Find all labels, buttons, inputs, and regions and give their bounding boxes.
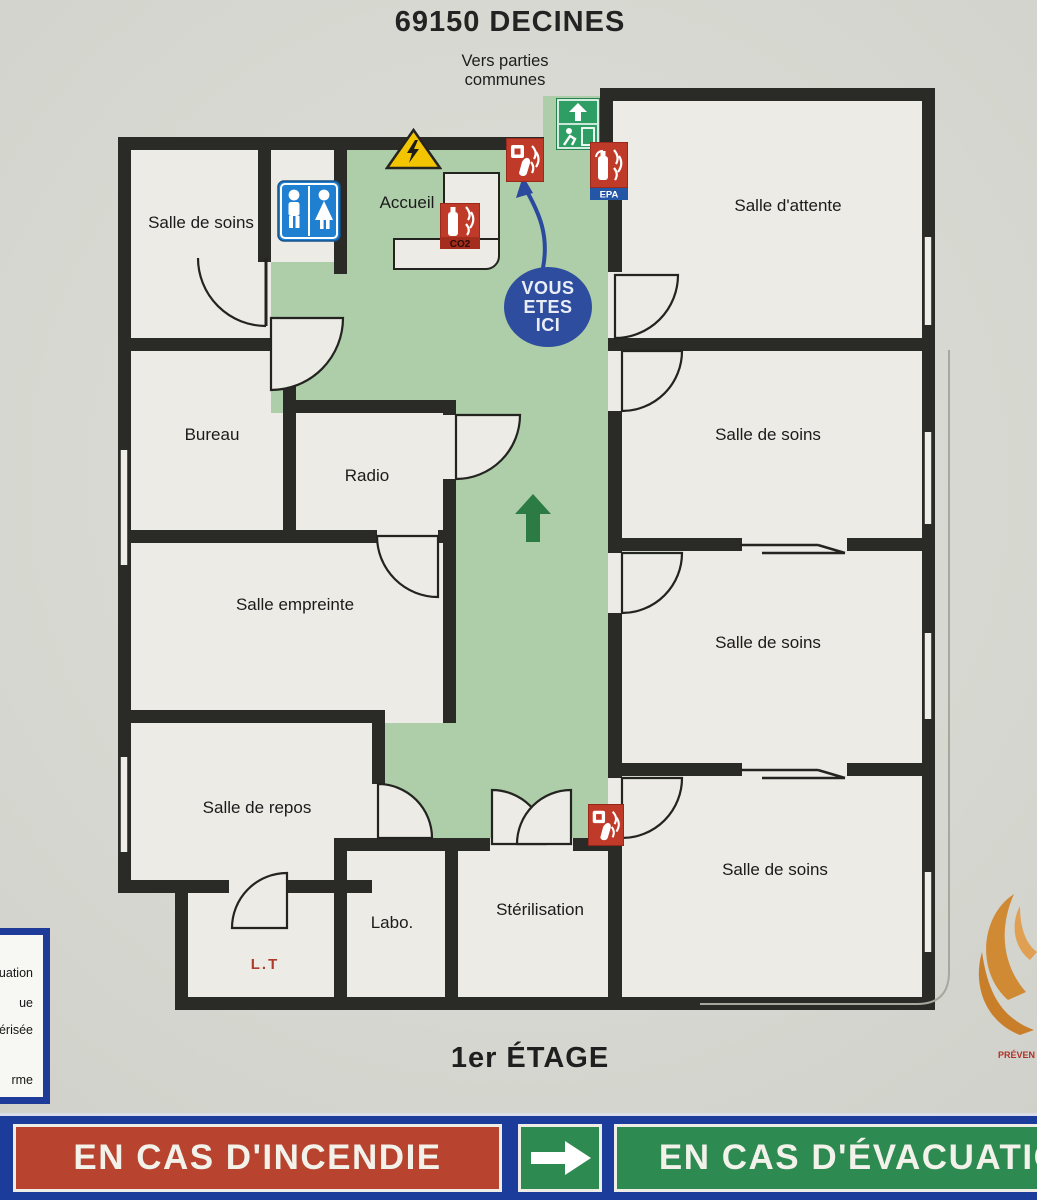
you-are-here-arrow <box>525 188 545 268</box>
legend-fragment: u pulvérisée <box>0 1023 33 1037</box>
evacuation-plan-photo: { "header": { "postcode_title": "69150 D… <box>0 0 1037 1200</box>
room-label-soins-right-1: Salle de soins <box>713 425 823 446</box>
legend-fragment: rme <box>11 1073 33 1087</box>
room-label-accueil: Accueil <box>366 193 448 214</box>
evacuation-banner: EN CAS D'ÉVACUATION <box>614 1124 1037 1192</box>
room-label-radio: Radio <box>307 466 427 487</box>
room-label-empreinte: Salle empreinte <box>225 595 365 616</box>
room-label-soins-bottom-right: Salle de soins <box>720 860 830 881</box>
room-label-attente: Salle d'attente <box>733 196 843 217</box>
evac-arrow-panel <box>518 1124 602 1192</box>
room-label-sterilisation: Stérilisation <box>465 900 615 921</box>
extinguisher-epa-icon: EPA <box>590 142 628 200</box>
door-arc-double-right <box>517 790 571 844</box>
legend-fragment: ue <box>19 996 33 1010</box>
corridor-direction-arrow-icon <box>513 494 553 544</box>
co2-label: CO2 <box>450 239 471 249</box>
legend-box: 'évacuation ue u pulvérisée rme <box>0 928 50 1104</box>
room-label-labo: Labo. <box>342 913 442 934</box>
brand-logo <box>979 894 1037 1035</box>
electrical-hazard-icon <box>385 128 442 170</box>
divider-hatch <box>740 770 845 778</box>
lt-marker: L.T <box>235 956 295 973</box>
door-arc-soins-right-2 <box>622 553 682 613</box>
manual-call-point-icon <box>506 138 544 182</box>
room-label-soins-right-2: Salle de soins <box>713 633 823 654</box>
door-arc-repos-corridor <box>378 784 432 838</box>
you-are-here-badge: VOUS ETES ICI <box>504 267 592 347</box>
brand-text-fragment: PRÉVEN <box>998 1050 1035 1060</box>
yah-line-2: ETES <box>523 298 572 317</box>
epa-label: EPA <box>600 190 619 201</box>
board-edge <box>700 350 949 1004</box>
door-arc-soins-bottom-right <box>622 778 682 838</box>
door-arc-radio <box>456 415 520 479</box>
door-arc-wc <box>271 318 343 390</box>
door-arc-soins-right-1 <box>622 351 682 411</box>
room-label-repos: Salle de repos <box>202 798 312 819</box>
yah-line-3: ICI <box>536 316 561 335</box>
toilets-sign-icon <box>277 180 341 242</box>
door-arc-waiting-room <box>615 275 678 338</box>
room-label-soins-top-left: Salle de soins <box>146 213 256 234</box>
door-arc-soins-top-left <box>198 258 266 326</box>
manual-call-point-icon <box>588 804 624 846</box>
room-label-bureau: Bureau <box>152 425 272 446</box>
fire-banner: EN CAS D'INCENDIE <box>13 1124 502 1192</box>
divider-hatch <box>740 545 845 553</box>
evac-arrow-icon <box>521 1127 599 1189</box>
door-arc-empreinte <box>377 536 438 597</box>
yah-line-1: VOUS <box>521 279 574 298</box>
door-arc-repos-lt <box>232 873 287 928</box>
legend-fragment: 'évacuation <box>0 966 33 980</box>
floor-caption: 1er ÉTAGE <box>380 1042 680 1075</box>
